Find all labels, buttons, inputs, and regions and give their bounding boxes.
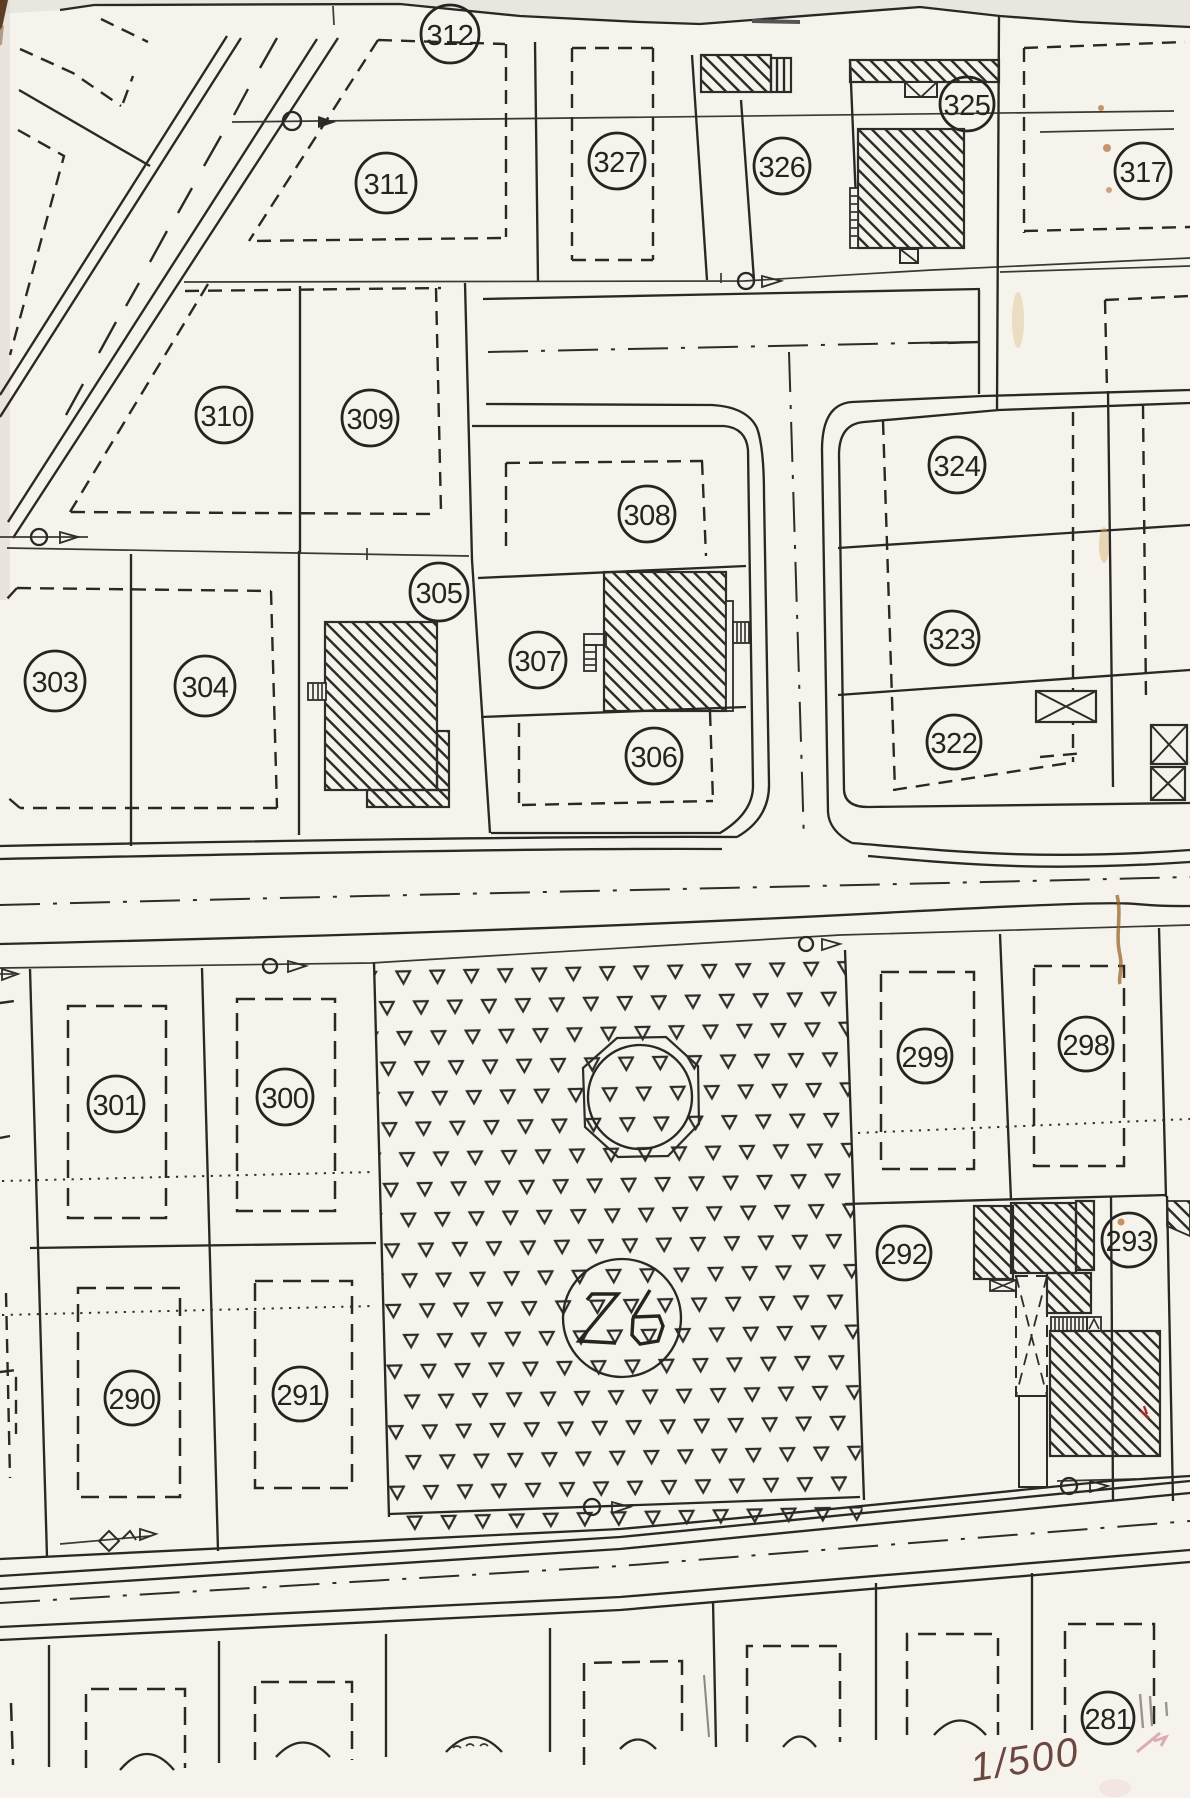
svg-text:310: 310 bbox=[201, 401, 248, 433]
svg-text:323: 323 bbox=[929, 624, 976, 656]
svg-text:304: 304 bbox=[182, 672, 229, 704]
svg-text:300: 300 bbox=[262, 1083, 309, 1115]
svg-text:325: 325 bbox=[944, 90, 991, 122]
svg-text:291: 291 bbox=[277, 1380, 324, 1412]
svg-text:311: 311 bbox=[364, 169, 409, 201]
svg-text:303: 303 bbox=[32, 667, 79, 699]
svg-text:298: 298 bbox=[1063, 1030, 1110, 1062]
svg-text:293: 293 bbox=[1106, 1226, 1153, 1258]
svg-text:317: 317 bbox=[1120, 157, 1167, 189]
svg-text:290: 290 bbox=[109, 1384, 156, 1416]
svg-text:327: 327 bbox=[594, 147, 641, 179]
svg-text:307: 307 bbox=[515, 646, 562, 678]
svg-text:322: 322 bbox=[931, 728, 978, 760]
svg-text:308: 308 bbox=[624, 500, 671, 532]
svg-text:326: 326 bbox=[759, 152, 806, 184]
svg-text:305: 305 bbox=[416, 578, 463, 610]
svg-text:306: 306 bbox=[631, 742, 678, 774]
svg-text:281: 281 bbox=[1085, 1704, 1132, 1736]
svg-text:309: 309 bbox=[347, 404, 394, 436]
svg-text:312: 312 bbox=[427, 20, 474, 52]
svg-text:324: 324 bbox=[934, 451, 981, 483]
svg-text:299: 299 bbox=[902, 1042, 949, 1074]
svg-text:292: 292 bbox=[881, 1239, 928, 1271]
svg-text:301: 301 bbox=[93, 1090, 140, 1122]
